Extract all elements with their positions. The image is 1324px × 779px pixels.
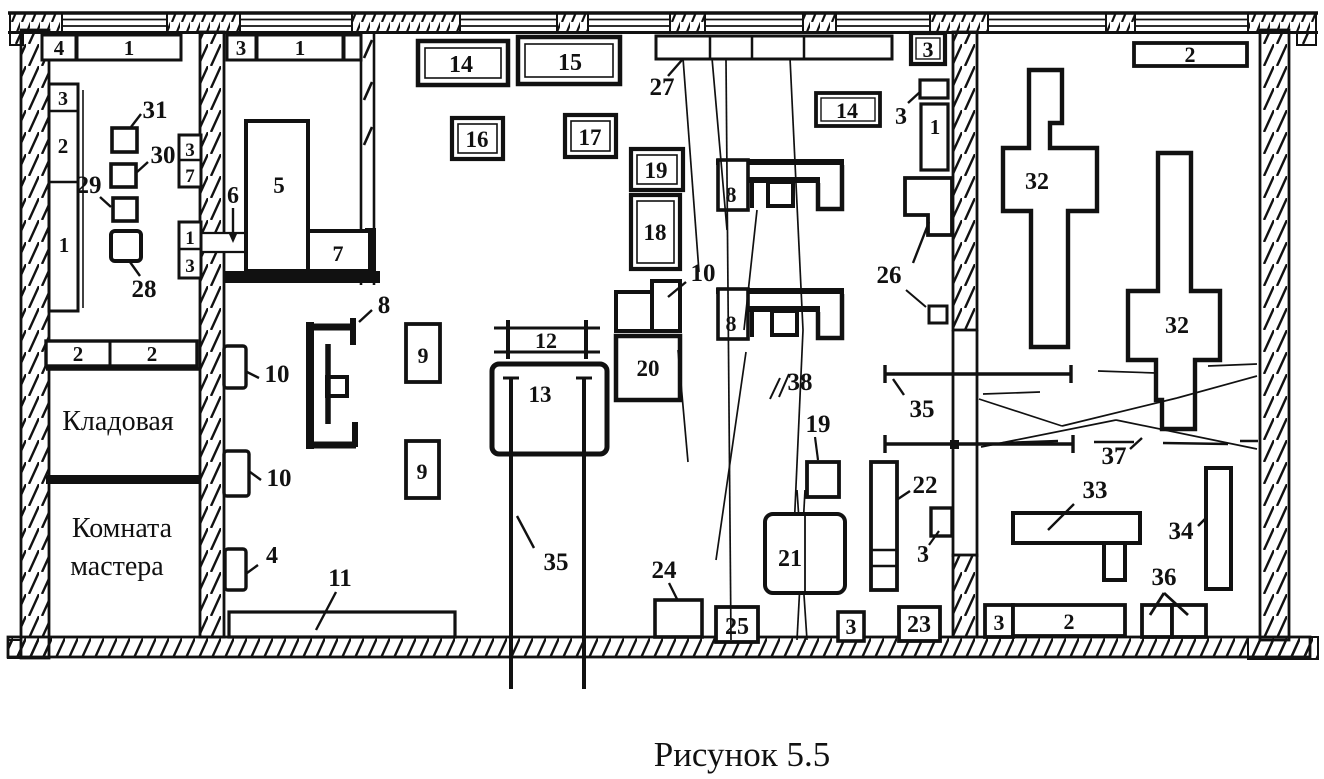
svg-text:22: 22 [913,472,938,499]
svg-text:10: 10 [267,465,292,492]
svg-text:6: 6 [227,183,239,209]
svg-text:10: 10 [265,361,290,388]
svg-text:7: 7 [185,166,195,187]
svg-text:15: 15 [558,50,582,76]
svg-text:10: 10 [691,260,716,287]
svg-text:3: 3 [994,610,1005,635]
svg-text:25: 25 [725,614,749,640]
svg-text:2: 2 [73,342,84,366]
svg-text:Рисунок 5.5: Рисунок 5.5 [654,735,831,774]
svg-text:3: 3 [923,37,934,62]
svg-text:9: 9 [418,343,429,368]
svg-text:24: 24 [652,557,678,584]
svg-text:19: 19 [645,158,668,183]
svg-text:мастера: мастера [70,551,164,582]
svg-text:18: 18 [644,220,667,245]
svg-text:34: 34 [1169,518,1195,545]
svg-text:31: 31 [143,97,168,124]
svg-text:2: 2 [1064,609,1075,634]
svg-text:3: 3 [917,542,929,568]
svg-text:20: 20 [637,356,660,381]
svg-text:3: 3 [895,104,907,130]
svg-text:2: 2 [58,134,69,158]
svg-text:29: 29 [77,172,102,199]
svg-text:36: 36 [1152,564,1177,591]
svg-text:9: 9 [417,459,428,484]
svg-text:3: 3 [846,614,857,639]
svg-text:12: 12 [535,328,557,353]
svg-text:8: 8 [726,311,737,336]
svg-text:1: 1 [185,228,195,249]
svg-text:8: 8 [378,292,391,319]
svg-text:30: 30 [151,142,176,169]
svg-text:14: 14 [836,98,858,123]
svg-text:Кладовая: Кладовая [62,406,174,437]
svg-text:38: 38 [788,369,813,396]
svg-text:1: 1 [124,36,135,60]
svg-text:26: 26 [877,262,902,289]
svg-text:19: 19 [806,411,831,438]
svg-text:37: 37 [1102,443,1127,470]
svg-text:1: 1 [59,233,70,257]
svg-text:35: 35 [544,549,569,576]
svg-text:2: 2 [147,342,158,366]
svg-text:23: 23 [907,612,931,638]
svg-text:3: 3 [236,36,247,60]
svg-text:32: 32 [1165,313,1189,339]
svg-text:1: 1 [930,115,941,139]
svg-text:32: 32 [1025,169,1049,195]
svg-text:13: 13 [529,382,552,407]
svg-text:33: 33 [1083,477,1108,504]
svg-text:2: 2 [1185,42,1196,67]
svg-text:21: 21 [778,546,802,572]
svg-text:Комната: Комната [72,513,173,544]
svg-text:17: 17 [579,125,602,150]
svg-text:3: 3 [58,88,68,110]
svg-text:4: 4 [54,36,65,60]
svg-text:28: 28 [132,276,157,303]
svg-text:14: 14 [449,52,473,78]
svg-text:4: 4 [266,543,278,569]
svg-text:3: 3 [185,140,195,161]
svg-text:11: 11 [328,565,352,592]
svg-text:7: 7 [333,241,344,266]
svg-text:27: 27 [650,74,675,101]
svg-text:3: 3 [185,256,195,277]
svg-text:5: 5 [273,173,285,198]
svg-text:35: 35 [910,396,935,423]
svg-text:16: 16 [466,127,489,152]
svg-text:1: 1 [295,36,306,60]
